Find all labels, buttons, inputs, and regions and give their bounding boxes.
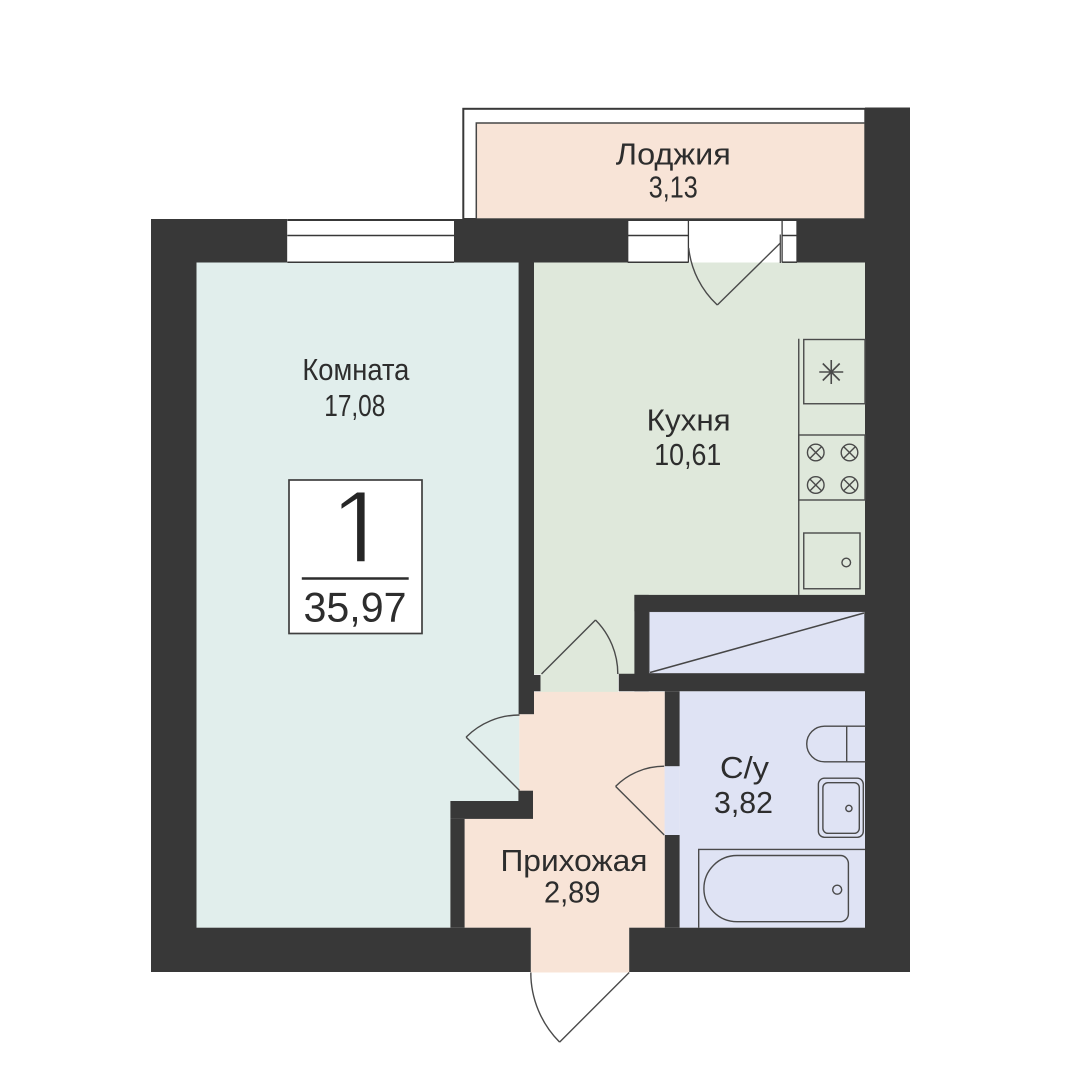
svg-text:Лоджия: Лоджия (616, 138, 731, 172)
svg-text:Кухня: Кухня (647, 404, 731, 438)
svg-text:17,08: 17,08 (324, 389, 385, 423)
svg-text:3,13: 3,13 (649, 170, 698, 204)
svg-text:10,61: 10,61 (654, 438, 721, 472)
svg-text:35,97: 35,97 (304, 583, 407, 630)
svg-text:Комната: Комната (302, 353, 409, 387)
svg-text:3,82: 3,82 (714, 786, 773, 820)
svg-text:С/у: С/у (720, 751, 770, 785)
svg-text:Прихожая: Прихожая (501, 844, 648, 878)
svg-text:2,89: 2,89 (544, 876, 601, 910)
